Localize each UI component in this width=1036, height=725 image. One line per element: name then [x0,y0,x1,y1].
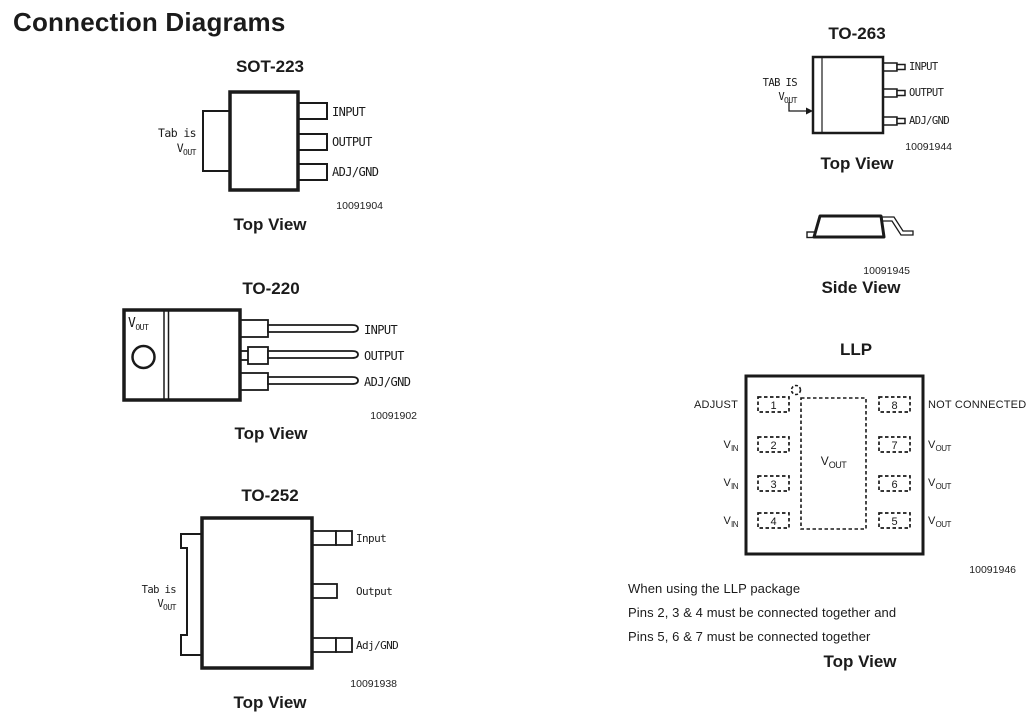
to220-vout-label: VOUT [128,314,148,332]
to220-lead2-base [248,347,268,364]
to220-mounting-hole [133,346,155,368]
llp-label-not-connected: NOT CONNECTED [928,399,1026,411]
to252-pin-label-output: Output [356,585,392,598]
to263-title: TO-263 [767,24,947,44]
llp-pad-number-4: 4 [770,516,776,528]
sot223-tab-label: Tab is VOUT [138,126,196,160]
to220-package-drawing [122,308,367,405]
llp-label-vout-5: VOUT [928,515,951,529]
sot223-pin-label-adjgnd: ADJ/GND [332,165,378,179]
llp-label-vin-4: VIN [688,515,738,529]
to252-tab [181,534,202,655]
to263-tab-label: TAB IS VOUT [743,76,797,108]
to252-body [202,518,312,668]
to263-pin-label-output: OUTPUT [909,87,943,99]
to263-tab-label-vout: VOUT [743,90,797,108]
sot223-tab [203,111,230,171]
to220-caption: Top View [181,424,361,444]
to220-pin-label-output: OUTPUT [364,349,404,363]
sot223-pin-output [298,134,327,150]
to252-tab-label-line1: Tab is [118,583,176,597]
sideview-figure-number: 10091945 [810,265,910,277]
llp-pad-number-7: 7 [891,440,897,452]
sot223-figure-number: 10091904 [283,200,383,212]
sot223-body [230,92,298,190]
sideview-caption: Side View [771,278,951,298]
llp-note-line2: Pins 2, 3 & 4 must be connected together… [628,605,896,620]
llp-note-line1: When using the LLP package [628,581,800,596]
to252-caption: Top View [180,693,360,713]
sot223-tab-label-vout: VOUT [138,141,196,160]
to220-pin-label-input: INPUT [364,323,397,337]
sideview-body [814,216,884,237]
to252-figure-number: 10091938 [297,678,397,690]
to252-pin-adjgnd-a [312,638,336,652]
to252-package-drawing [178,512,440,675]
llp-pad-number-1: 1 [770,400,776,412]
to220-lead3-base [240,373,268,390]
llp-center-pad-label: VOUT [801,452,866,470]
sot223-caption: Top View [180,215,360,235]
sot223-pin-label-input: INPUT [332,105,365,119]
to252-pin-input-b [336,531,352,545]
to220-pin-label-adjgnd: ADJ/GND [364,375,410,389]
to263-pin-label-adjgnd: ADJ/GND [909,115,949,127]
to263-pin-label-input: INPUT [909,61,938,73]
to263-tab-label-line1: TAB IS [743,76,797,90]
to252-tab-label: Tab is VOUT [118,583,176,615]
to220-lead2 [268,351,358,358]
sot223-pin-input [298,103,327,119]
to263-pin-adjgnd-a [883,117,897,125]
to263-pin-input-b [897,65,905,70]
llp-label-vin-3: VIN [688,477,738,491]
to252-pin-output [312,584,337,598]
llp-pad-number-3: 3 [770,479,776,491]
to252-pin-label-adjgnd: Adj/GND [356,639,398,652]
llp-pad-number-8: 8 [891,400,897,412]
llp-note-line3: Pins 5, 6 & 7 must be connected together [628,629,870,644]
to220-title: TO-220 [181,279,361,299]
to263-pin-output-a [883,89,897,97]
datasheet-page: { "page": { "title": "Connection Diagram… [0,0,1036,725]
llp-label-adjust: ADJUST [638,399,738,411]
to263-caption: Top View [767,154,947,174]
sot223-pin-label-output: OUTPUT [332,135,372,149]
llp-label-vout-7: VOUT [928,439,951,453]
llp-pad-number-5: 5 [891,516,897,528]
to220-lead1 [268,325,358,332]
llp-title: LLP [766,340,946,360]
to252-tab-label-vout: VOUT [118,597,176,615]
to263-pin-input-a [883,63,897,71]
llp-label-vout-6: VOUT [928,477,951,491]
to263-figure-number: 10091944 [852,141,952,153]
llp-pad-number-6: 6 [891,479,897,491]
llp-figure-number: 10091946 [916,564,1016,576]
sideview-lead [882,217,913,235]
sot223-title: SOT-223 [180,57,360,77]
to263-pin-adjgnd-b [897,119,905,124]
to252-pin-adjgnd-b [336,638,352,652]
to220-lead1-base [240,320,268,337]
to263-pin-output-b [897,91,905,96]
page-title: Connection Diagrams [13,7,286,38]
to263-sideview-drawing [800,205,915,250]
sot223-tab-label-line1: Tab is [138,126,196,141]
to220-lead3 [268,377,358,384]
to263-body [813,57,883,133]
llp-pad-number-2: 2 [770,440,776,452]
to252-pin-input-a [312,531,336,545]
sot223-pin-adjgnd [298,164,327,180]
to220-figure-number: 10091902 [317,410,417,422]
to252-pin-label-input: Input [356,532,386,545]
to252-title: TO-252 [180,486,360,506]
llp-label-vin-2: VIN [688,439,738,453]
llp-caption: Top View [770,652,950,672]
sot223-package-drawing [195,88,335,195]
